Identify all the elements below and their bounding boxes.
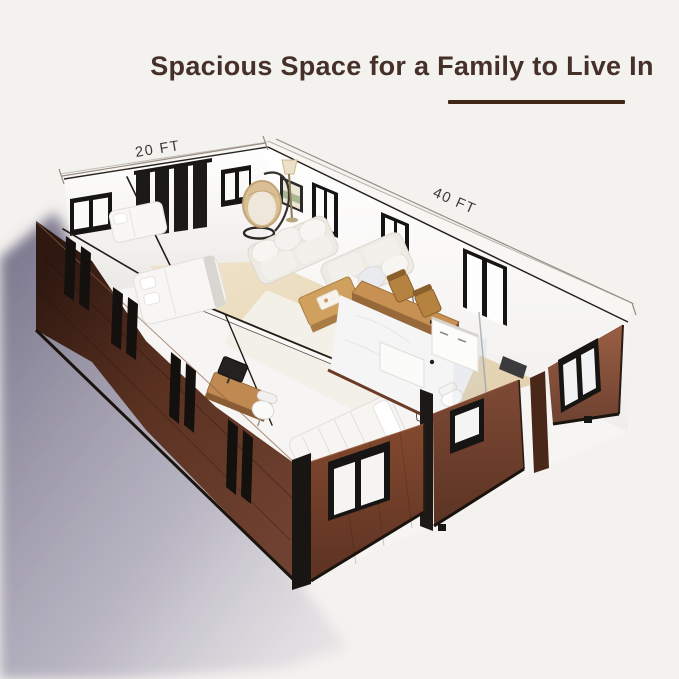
module-c-foot — [584, 416, 592, 423]
left-wall-window-1 — [70, 192, 112, 236]
product-image: Spacious Space for a Family to Live In — [0, 0, 679, 679]
module-b-foot — [438, 524, 446, 531]
module-a-corner-post — [292, 453, 311, 590]
floorplan-3d-render: 20 FT 40 FT — [0, 0, 679, 679]
